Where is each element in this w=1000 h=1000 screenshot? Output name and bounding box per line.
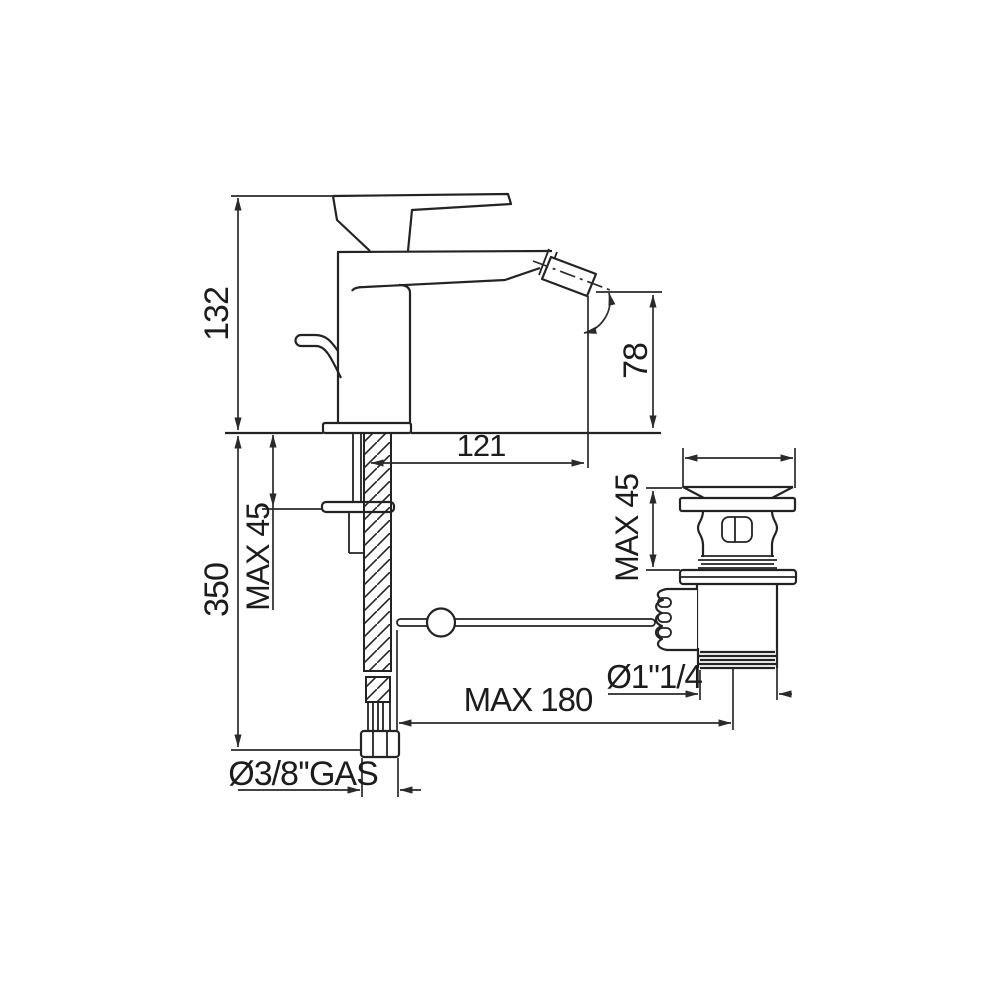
waste-cap-rim [680,498,795,511]
label-spout-height: 132 [198,287,236,341]
technical-drawing-svg: 132 350 MAX 45 78 121 MAX 45 Ø1"1/4 MAX … [0,0,1000,1000]
label-deck-thickness-max: MAX 45 [240,503,276,611]
hex-nut [361,731,399,757]
mounting-stud [353,433,361,502]
label-under-deck-height: 350 [198,563,236,617]
dimension-labels: 132 350 MAX 45 78 121 MAX 45 Ø1"1/4 MAX … [198,287,702,793]
label-spout-reach: 121 [457,428,506,463]
label-waste-deck-max: MAX 45 [609,474,645,582]
popup-rod-ball [427,609,455,637]
waste-mid-body [697,584,777,648]
waste-upper-threads [698,556,777,568]
threaded-shank-lower [366,677,390,702]
body-top-edge [337,251,552,252]
lever-handle-back [333,196,370,251]
aerator [542,257,596,296]
label-outlet-height: 78 [617,343,655,379]
popup-knob [296,335,341,378]
label-waste-thread-diameter: Ø1"1/4 [606,658,702,695]
waste-cap-top [683,487,793,498]
mounting-nut [349,512,364,553]
bidet-mixer-body [296,194,610,433]
waste-upper-body-right [772,511,777,557]
label-supply-thread: Ø3/8''GAS [228,755,378,793]
base-plate [323,423,411,433]
threaded-shank-upper [364,433,391,671]
spout-underside [352,268,540,291]
waste-slot [722,517,752,542]
waste-upper-body-left [698,511,703,557]
body-right-edge [399,285,410,423]
drawing-page: 132 350 MAX 45 78 121 MAX 45 Ø1"1/4 MAX … [0,0,1000,1000]
waste-bottom-threads [698,648,777,668]
label-rod-length-max: MAX 180 [464,681,593,718]
popup-waste-assembly [656,487,796,668]
braided-hose [368,702,390,731]
